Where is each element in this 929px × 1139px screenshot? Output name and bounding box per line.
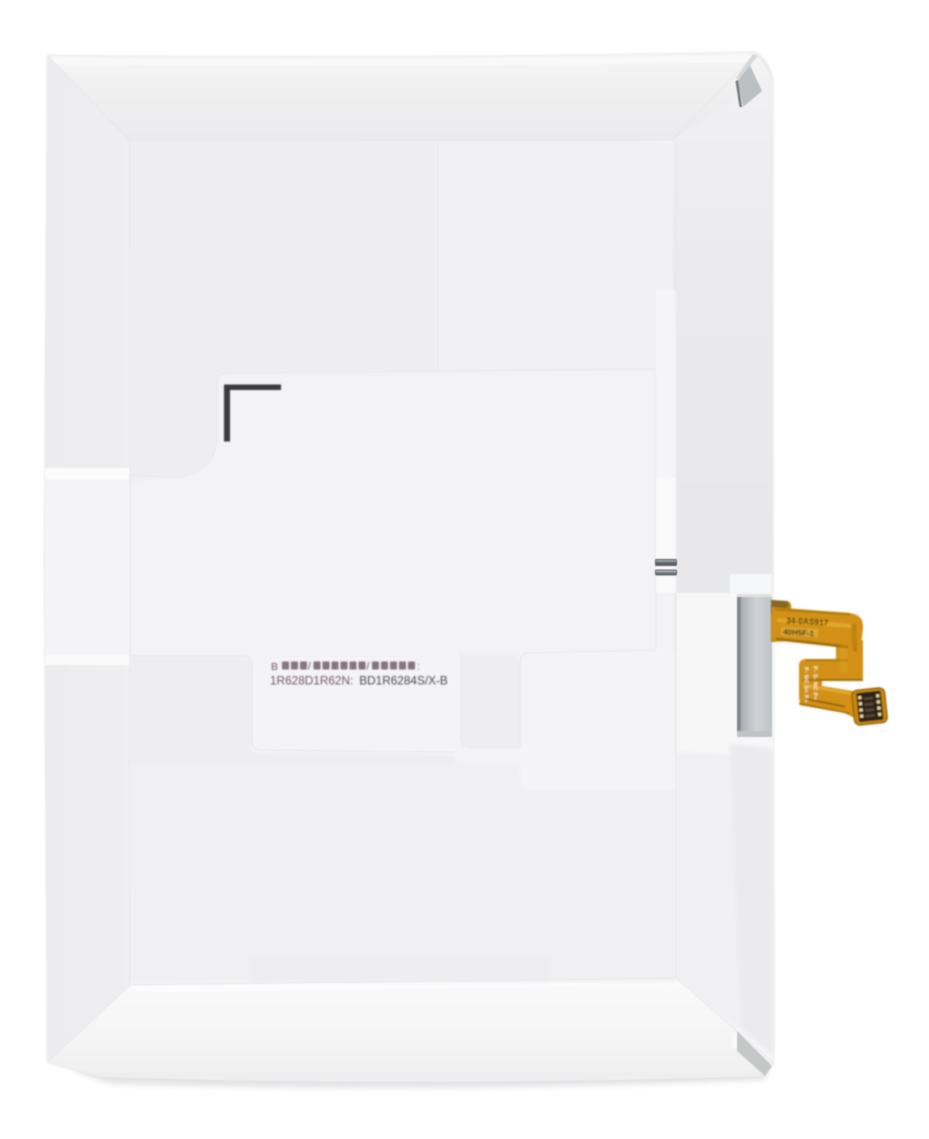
- svg-text:1R628D1R62N:BD1R6284S/X-B: 1R628D1R62N:BD1R6284S/X-B: [270, 674, 448, 688]
- svg-text:/: /: [367, 662, 370, 673]
- svg-text:/: /: [308, 662, 311, 673]
- svg-text::: :: [417, 662, 420, 673]
- svg-text:P- NC S+ P+: P- NC S+ P+: [803, 667, 809, 703]
- svg-text:B623ZBM: B623ZBM: [850, 624, 857, 652]
- svg-text:40H5F-1: 40H5F-1: [783, 627, 815, 638]
- svg-text:P- S- NC P+: P- S- NC P+: [812, 666, 818, 701]
- svg-text:B: B: [271, 661, 278, 673]
